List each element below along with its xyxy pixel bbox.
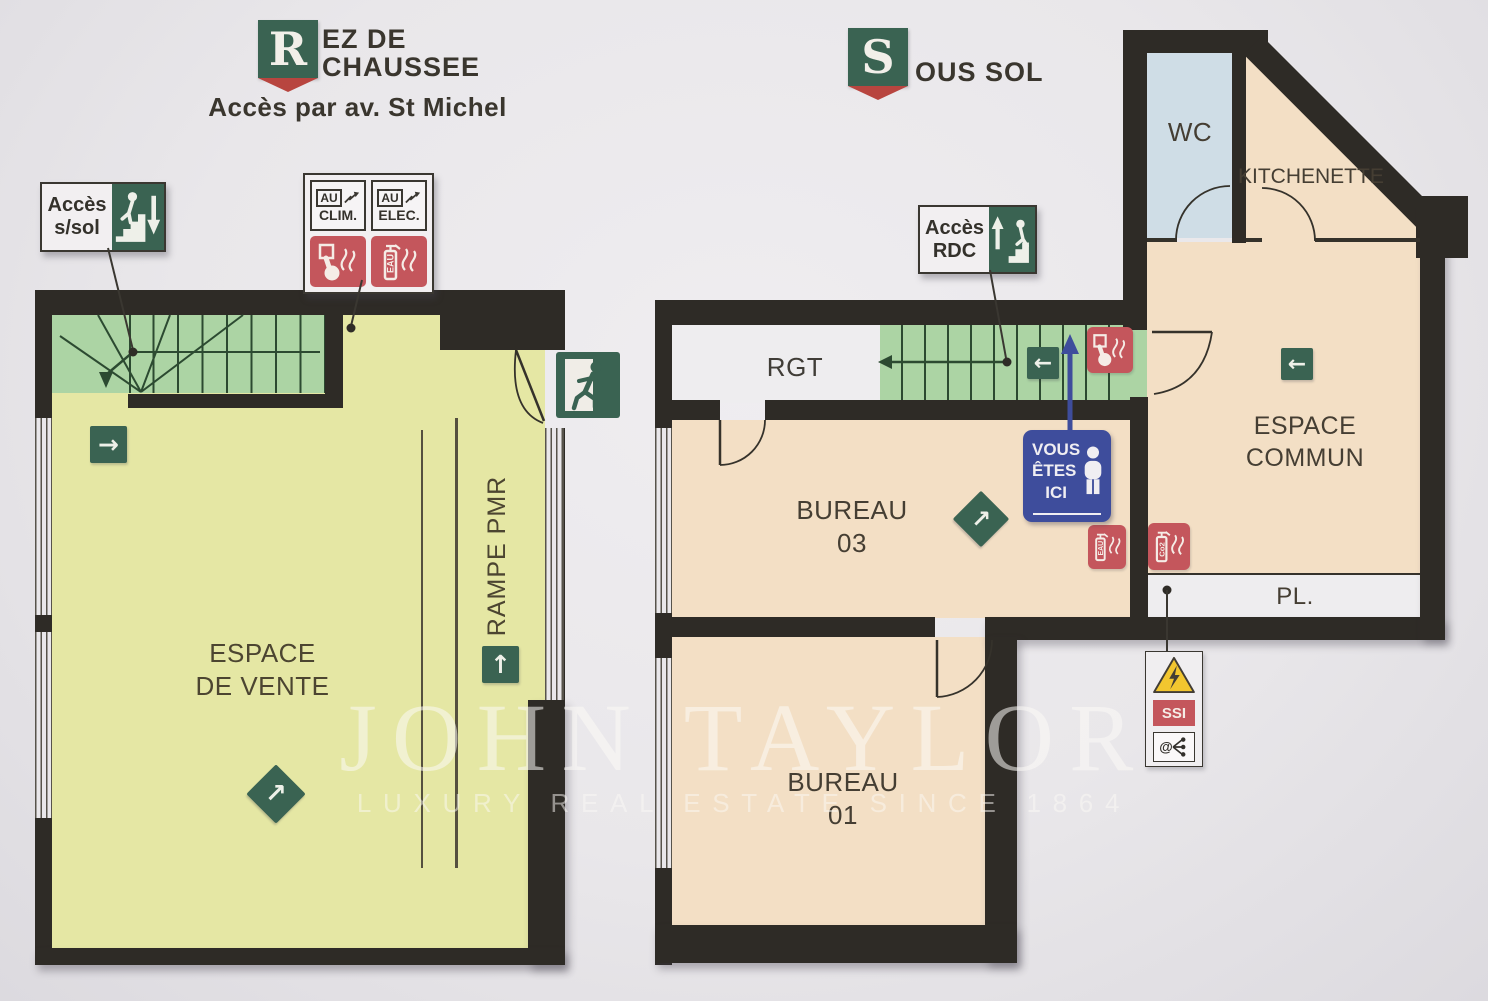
pointer-dot: [1003, 358, 1012, 367]
door-arc: [720, 420, 765, 465]
sign-pointer-line: [351, 280, 362, 326]
door-arc: [1154, 332, 1212, 394]
door-leaf: [516, 350, 544, 421]
sign-pointer-line: [990, 270, 1006, 358]
door-arc: [1262, 188, 1315, 241]
plan-linework: [0, 0, 1488, 1001]
sign-pointer-line: [108, 248, 133, 350]
stair-arrowhead: [878, 355, 892, 369]
stair-winder-lines: [60, 315, 243, 393]
pointer-dot: [129, 348, 138, 357]
evacuation-floor-plan: R EZ DE CHAUSSEE Accès par av. St Michel…: [0, 0, 1488, 1001]
stair-down-arrowhead: [99, 372, 113, 388]
door-arc: [1176, 186, 1230, 240]
door-arc: [937, 640, 992, 697]
pointer-dot: [347, 324, 356, 333]
evacuation-arrowhead: [1061, 334, 1079, 354]
